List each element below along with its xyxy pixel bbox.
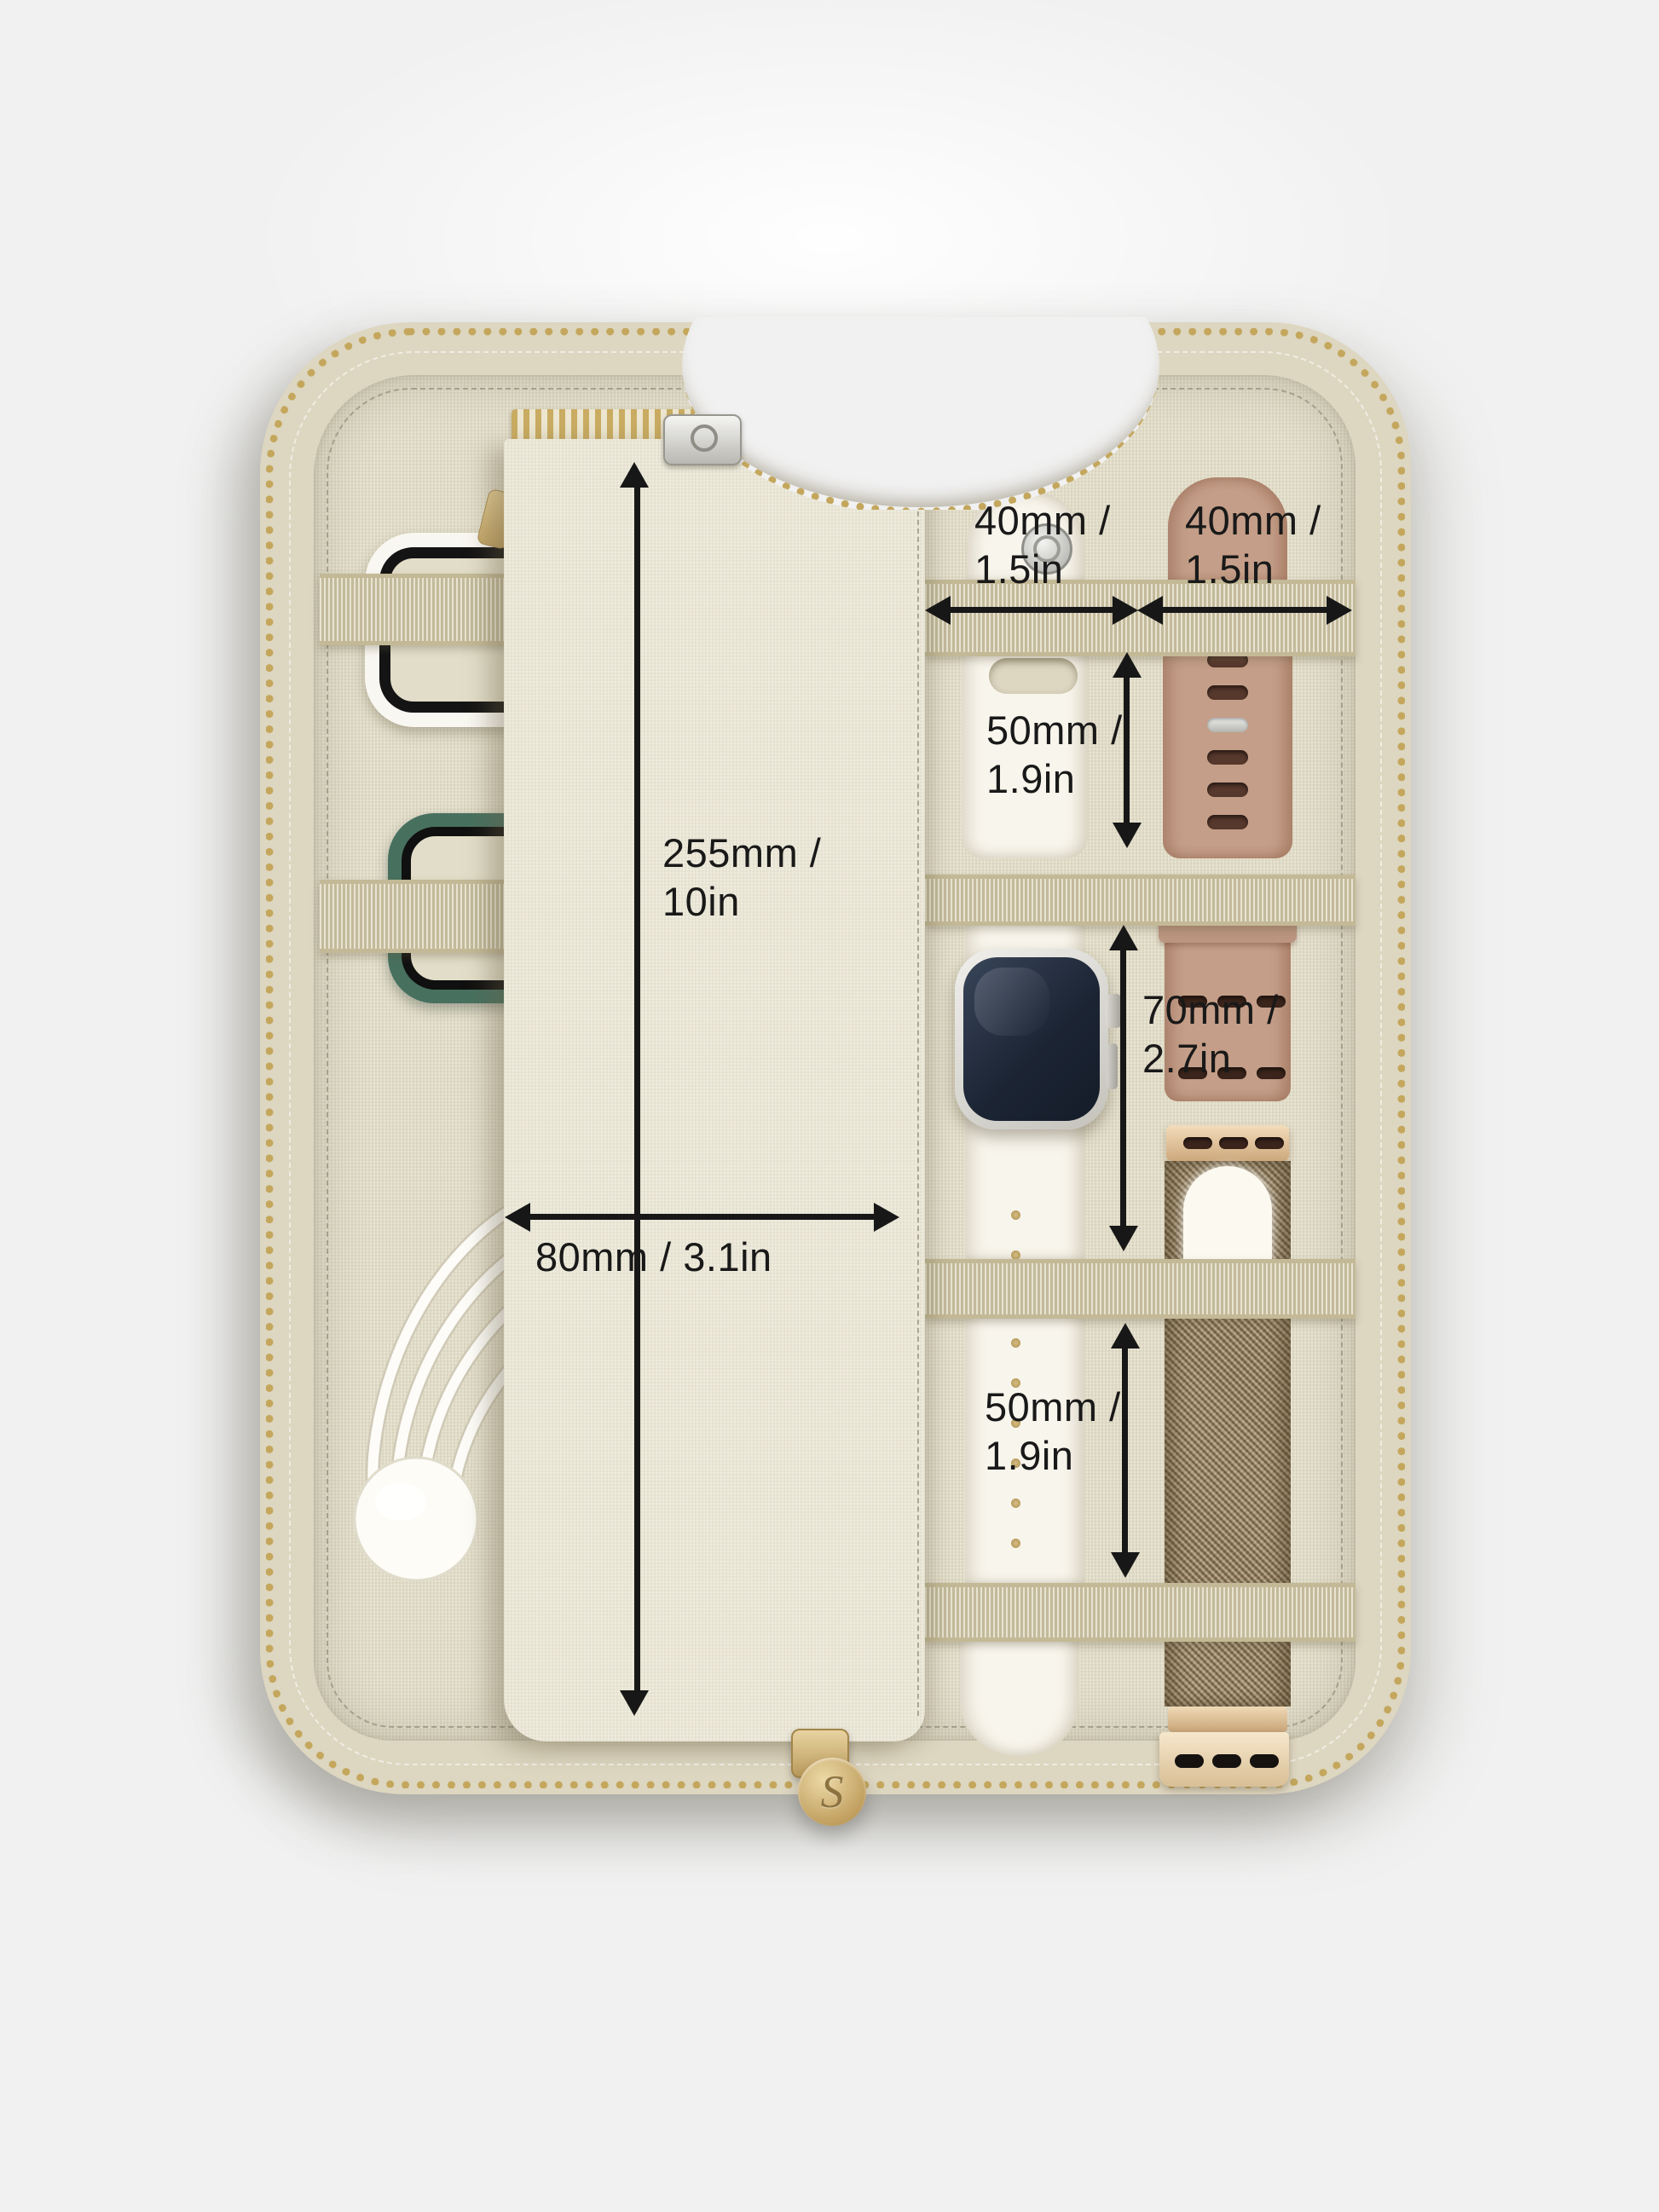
adapter-slot bbox=[1255, 1137, 1284, 1149]
arrow-head-down bbox=[1109, 1226, 1138, 1251]
arrow-head-up bbox=[620, 462, 649, 488]
arrow-head-up bbox=[1113, 652, 1142, 678]
dimension-arrow-gap-middle bbox=[1120, 948, 1126, 1229]
arrow-head-left bbox=[505, 1203, 530, 1232]
zipper-charm-monogram-disc: S bbox=[798, 1758, 866, 1826]
dimension-label-slot-right: 40mm / 1.5in bbox=[1185, 496, 1321, 593]
elastic-strap-right-row2 bbox=[925, 875, 1356, 926]
white-sport-band-end bbox=[960, 1632, 1079, 1756]
tan-band-hole bbox=[1207, 815, 1248, 829]
center-flap-pouch bbox=[504, 439, 925, 1741]
dimension-arrow-slot-right bbox=[1158, 607, 1330, 613]
charm-monogram: S bbox=[821, 1765, 844, 1818]
arrow-head-up bbox=[1111, 1323, 1140, 1349]
apple-watch bbox=[955, 949, 1108, 1129]
adapter-slot bbox=[1219, 1137, 1248, 1149]
elastic-strap-right-row4 bbox=[925, 1583, 1356, 1642]
white-band-buckle-slot bbox=[989, 658, 1078, 694]
product-photo-watch-band-organizer: 255mm / 10in 80mm / 3.1in 40mm / 1.5in 4… bbox=[0, 0, 1659, 2212]
dimension-label-gap-top: 50mm / 1.9in bbox=[986, 706, 1123, 803]
tan-band-hole bbox=[1207, 685, 1248, 700]
arrow-head-down bbox=[1113, 823, 1142, 848]
arrow-head-right bbox=[874, 1203, 899, 1232]
elastic-strap-right-row3 bbox=[925, 1259, 1356, 1319]
dimension-arrow-gap-top bbox=[1124, 675, 1130, 825]
arrow-head-up bbox=[1109, 925, 1138, 950]
band-stud bbox=[1011, 1210, 1020, 1220]
watch-screen bbox=[963, 957, 1100, 1121]
arrow-head-down bbox=[620, 1690, 649, 1716]
dimension-label-slot-left: 40mm / 1.5in bbox=[974, 496, 1111, 593]
band-stud bbox=[1011, 1539, 1020, 1548]
adapter-slot bbox=[1183, 1137, 1212, 1149]
dimension-arrow-gap-bottom bbox=[1122, 1346, 1128, 1556]
inner-zipper-slider bbox=[663, 414, 742, 465]
dimension-arrow-slot-left bbox=[946, 607, 1117, 613]
milanese-loop-opening bbox=[1183, 1166, 1272, 1262]
watch-side-button bbox=[1107, 1043, 1118, 1089]
arrow-head-right bbox=[1327, 596, 1352, 625]
dimension-label-gap-middle: 70mm / 2.7in bbox=[1142, 985, 1279, 1083]
arrow-head-down bbox=[1111, 1552, 1140, 1578]
dimension-arrow-pouch-height bbox=[634, 486, 640, 1692]
milanese-band-clasp-bar bbox=[1168, 1707, 1287, 1732]
band-stud bbox=[1011, 1499, 1020, 1508]
tan-band-hole bbox=[1207, 783, 1248, 797]
dimension-label-pouch-width: 80mm / 3.1in bbox=[535, 1233, 772, 1281]
lug-slot bbox=[1175, 1754, 1204, 1768]
dimension-label-pouch-height: 255mm / 10in bbox=[662, 829, 821, 926]
elastic-strap-left-bottom bbox=[320, 880, 520, 953]
elastic-strap-left-top bbox=[320, 574, 520, 645]
tan-band-pin-slot bbox=[1207, 718, 1248, 732]
arrow-head-right bbox=[1113, 596, 1138, 625]
tan-band-hole bbox=[1207, 750, 1248, 765]
lug-slot bbox=[1212, 1754, 1241, 1768]
watch-digital-crown bbox=[1106, 994, 1121, 1028]
zipper-edge-dip bbox=[656, 317, 1185, 510]
dimension-label-gap-bottom: 50mm / 1.9in bbox=[985, 1383, 1121, 1480]
dimension-arrow-pouch-width bbox=[529, 1214, 876, 1220]
lug-slot bbox=[1250, 1754, 1279, 1768]
band-stud bbox=[1011, 1338, 1020, 1348]
